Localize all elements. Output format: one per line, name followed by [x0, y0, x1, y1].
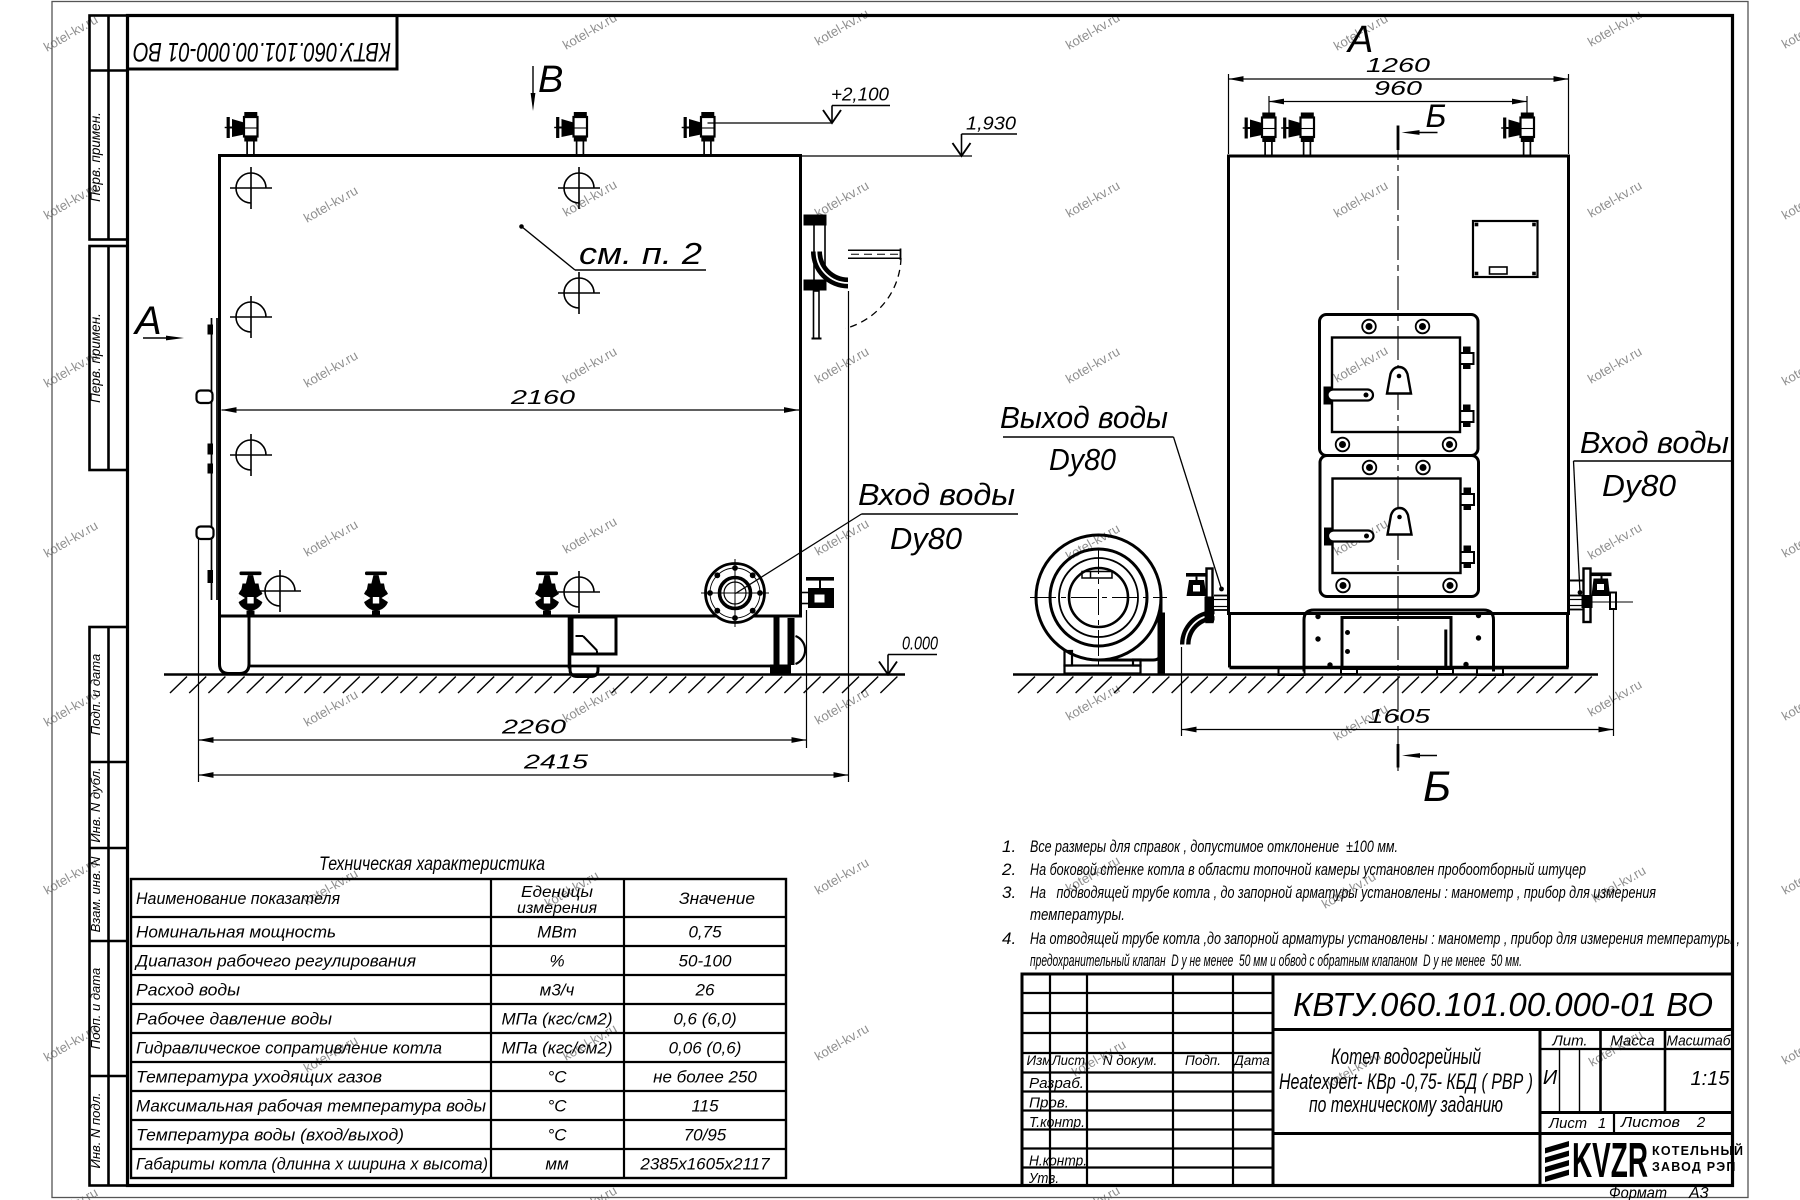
- svg-text:Подп.: Подп.: [1185, 1053, 1221, 1068]
- svg-text:Котел водогрейный: Котел водогрейный: [1331, 1044, 1481, 1069]
- svg-text:Утв.: Утв.: [1028, 1170, 1059, 1187]
- svg-text:0,75: 0,75: [688, 923, 722, 942]
- svg-text:Инв. N дубл.: Инв. N дубл.: [88, 767, 103, 842]
- svg-text:Перв. примен.: Перв. примен.: [88, 313, 103, 403]
- svg-text:2385х1605х2117: 2385х1605х2117: [639, 1155, 770, 1174]
- svg-text:2: 2: [1696, 1114, 1706, 1131]
- svg-text:%: %: [549, 952, 564, 971]
- svg-text:КВТУ.060.101.00.000-01 ВО: КВТУ.060.101.00.000-01 ВО: [133, 37, 391, 67]
- svg-text:°С: °С: [547, 1097, 567, 1116]
- svg-text:3.: 3.: [1002, 883, 1016, 902]
- svg-text:МПа (кгс/см2): МПа (кгс/см2): [501, 1010, 612, 1029]
- svg-text:Все размеры для справок , допу: Все размеры для справок , допустимое отк…: [1030, 837, 1398, 856]
- svg-text:Листов: Листов: [1620, 1114, 1680, 1131]
- svg-text:А: А: [1346, 19, 1373, 61]
- svg-text:см. п. 2: см. п. 2: [579, 236, 702, 271]
- svg-text:Рабочее давление воды: Рабочее давление воды: [136, 1010, 333, 1029]
- svg-text:Т.контр.: Т.контр.: [1029, 1114, 1085, 1131]
- svg-text:Heatexpert- КВр -0,75- КБД ( Р: Heatexpert- КВр -0,75- КБД ( РВР ): [1279, 1069, 1533, 1094]
- svg-text:115: 115: [691, 1097, 719, 1116]
- svg-text:Лист: Лист: [1548, 1115, 1587, 1132]
- svg-text:Еденицы: Еденицы: [521, 884, 593, 901]
- svg-text:Расход воды: Расход воды: [136, 981, 240, 1000]
- svg-text:На боковой стенке котла в обла: На боковой стенке котла в области топочн…: [1030, 860, 1586, 879]
- svg-text:°С: °С: [547, 1126, 567, 1145]
- svg-text:Температура воды (вход/выход): Температура воды (вход/выход): [136, 1126, 404, 1145]
- svg-text:Номинальная мощность: Номинальная мощность: [136, 923, 336, 942]
- svg-text:предохранительный клапан D у: предохранительный клапан D у не менее 50…: [1030, 951, 1522, 970]
- svg-text:Н.контр.: Н.контр.: [1029, 1153, 1087, 1170]
- svg-text:Выход воды: Выход воды: [1000, 400, 1168, 435]
- svg-text:Значение: Значение: [679, 889, 755, 908]
- svg-text:по техническому заданию: по техническому заданию: [1309, 1092, 1503, 1117]
- svg-text:Dy80: Dy80: [890, 521, 962, 556]
- svg-text:На подводящей трубе котла ,: На подводящей трубе котла , до запорной …: [1030, 883, 1656, 902]
- svg-text:мм: мм: [545, 1155, 569, 1174]
- svg-text:50-100: 50-100: [679, 952, 732, 971]
- svg-text:Максимальная рабочая температу: Максимальная рабочая температура воды: [136, 1097, 486, 1116]
- svg-text:2415: 2415: [523, 752, 590, 774]
- svg-text:Формат: Формат: [1609, 1185, 1667, 1200]
- svg-text:ЗАВОД РЭП: ЗАВОД РЭП: [1652, 1160, 1737, 1174]
- svg-text:Масштаб: Масштаб: [1667, 1033, 1732, 1050]
- svg-text:0,06 (0,6): 0,06 (0,6): [669, 1039, 742, 1058]
- svg-text:1260: 1260: [1366, 55, 1430, 77]
- svg-text:Изм: Изм: [1027, 1053, 1052, 1068]
- svg-text:Техническая характеристика: Техническая характеристика: [319, 854, 545, 875]
- svg-text:МВт: МВт: [537, 923, 577, 942]
- svg-text:KVZR: KVZR: [1572, 1134, 1648, 1188]
- svg-text:2260: 2260: [501, 717, 566, 739]
- svg-text:1.: 1.: [1002, 837, 1016, 856]
- svg-text:МПа (кгс/см2): МПа (кгс/см2): [501, 1039, 612, 1058]
- svg-text:И: И: [1543, 1067, 1558, 1089]
- svg-text:1605: 1605: [1368, 706, 1431, 728]
- svg-text:температуры.: температуры.: [1030, 905, 1125, 924]
- svg-text:Dy80: Dy80: [1049, 442, 1116, 477]
- svg-text:Вход воды: Вход воды: [858, 477, 1015, 512]
- svg-text:960: 960: [1374, 78, 1422, 100]
- svg-text:Пров.: Пров.: [1029, 1095, 1069, 1112]
- svg-text:Гидравлическое сопративление к: Гидравлическое сопративление котла: [136, 1039, 442, 1058]
- svg-text:В: В: [538, 59, 563, 101]
- svg-text:Наименование показателя: Наименование показателя: [136, 889, 340, 908]
- svg-text:Вход воды: Вход воды: [1580, 425, 1729, 460]
- svg-text:2160: 2160: [510, 387, 575, 409]
- svg-text:0,6 (6,0): 0,6 (6,0): [673, 1010, 736, 1029]
- svg-text:Лист: Лист: [1051, 1053, 1085, 1068]
- svg-text:Подп. и дата: Подп. и дата: [88, 968, 103, 1049]
- svg-text:м3/ч: м3/ч: [540, 981, 575, 1000]
- svg-text:70/95: 70/95: [684, 1126, 727, 1145]
- svg-text:Dy80: Dy80: [1602, 468, 1676, 503]
- svg-text:N докум.: N докум.: [1103, 1053, 1158, 1068]
- svg-text:4.: 4.: [1002, 929, 1016, 948]
- svg-text:Перв. примен.: Перв. примен.: [88, 112, 103, 202]
- svg-text:На отводящей трубе котла ,до з: На отводящей трубе котла ,до запорной ар…: [1030, 929, 1740, 948]
- svg-text:измерения: измерения: [517, 900, 597, 917]
- svg-text:1: 1: [1598, 1115, 1606, 1132]
- svg-text:Б: Б: [1426, 98, 1447, 134]
- svg-text:0.000: 0.000: [902, 634, 938, 654]
- svg-text:Температура уходящих газов: Температура уходящих газов: [136, 1068, 382, 1087]
- svg-text:Лит.: Лит.: [1551, 1033, 1587, 1050]
- svg-text:Взам. инв. N: Взам. инв. N: [88, 856, 103, 932]
- svg-text:26: 26: [695, 981, 715, 1000]
- svg-text:КВТУ.060.101.00.000-01 ВО: КВТУ.060.101.00.000-01 ВО: [1293, 986, 1713, 1023]
- svg-text:°С: °С: [547, 1068, 567, 1087]
- svg-text:Подп. и дата: Подп. и дата: [88, 654, 103, 735]
- svg-text:Б: Б: [1423, 763, 1451, 811]
- svg-text:1:15: 1:15: [1691, 1068, 1731, 1090]
- svg-text:Инв. N подл.: Инв. N подл.: [88, 1093, 103, 1169]
- svg-text:А: А: [133, 299, 162, 343]
- svg-text:КОТЕЛЬНЫЙ: КОТЕЛЬНЫЙ: [1652, 1143, 1744, 1158]
- svg-text:1,930: 1,930: [966, 114, 1016, 134]
- svg-text:Разраб.: Разраб.: [1029, 1075, 1084, 1092]
- svg-text:+2,100: +2,100: [831, 85, 889, 105]
- svg-text:А3: А3: [1688, 1185, 1709, 1200]
- svg-text:Масса: Масса: [1610, 1033, 1654, 1050]
- svg-text:Диапазон рабочего регулировани: Диапазон рабочего регулирования: [134, 952, 416, 971]
- svg-text:2.: 2.: [1001, 860, 1016, 879]
- svg-text:Габариты котла (длинна х ширин: Габариты котла (длинна х ширина х высота…: [136, 1155, 488, 1174]
- svg-text:Дата: Дата: [1232, 1053, 1270, 1068]
- svg-text:не более 250: не более 250: [653, 1068, 757, 1087]
